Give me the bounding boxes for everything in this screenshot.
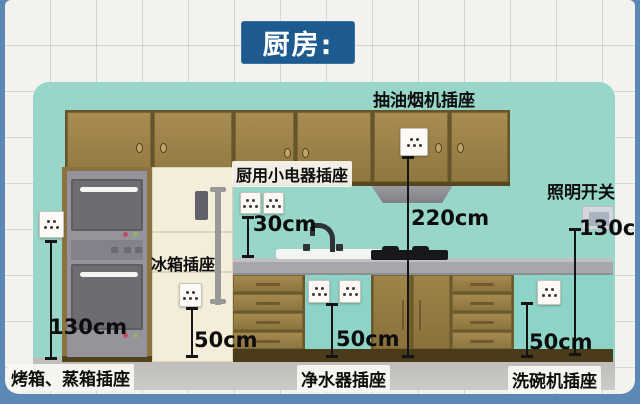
power-outlet-icon xyxy=(339,280,361,303)
measurement-dishwasher: 50cm xyxy=(529,330,593,354)
label-water-purifier-outlet: 净水器插座 xyxy=(297,365,390,392)
cabinet-knob-icon xyxy=(284,148,291,158)
cabinet-knob-icon xyxy=(302,148,309,158)
fridge-handle-icon xyxy=(210,299,226,304)
oven-door xyxy=(71,179,143,231)
drawer xyxy=(233,294,303,311)
faucet-handle-icon xyxy=(303,244,310,251)
power-outlet-icon xyxy=(240,192,261,214)
oven-button-icon xyxy=(135,247,142,253)
drawer xyxy=(452,313,512,330)
indicator-light-icon xyxy=(133,333,138,338)
drawer xyxy=(452,332,512,349)
cabinet-knob-icon xyxy=(457,143,464,153)
page-title-text: 厨房: xyxy=(263,23,334,62)
range-hood xyxy=(369,186,455,203)
fridge-handle-icon xyxy=(215,187,221,305)
oven-button-icon xyxy=(124,247,131,253)
diagram-background: 130cm 50cm 30cm 220cm 50cm 50cm 130cm 抽油… xyxy=(5,0,635,394)
measurement-fridge: 50cm xyxy=(194,328,258,352)
drawer-bank xyxy=(452,275,512,349)
indicator-light-icon xyxy=(133,232,138,237)
kitchen-diagram: 130cm 50cm 30cm 220cm 50cm 50cm 130cm 抽油… xyxy=(0,0,640,404)
fridge-handle-icon xyxy=(195,191,208,220)
countertop xyxy=(233,258,613,275)
oven-button-icon xyxy=(111,247,118,253)
power-outlet-icon xyxy=(263,192,284,214)
drawer xyxy=(452,275,512,292)
measure-line-water-purifier xyxy=(331,303,333,358)
label-dishwasher-outlet: 洗碗机插座 xyxy=(508,366,601,393)
measure-line-oven xyxy=(50,240,52,360)
faucet-handle-icon xyxy=(336,244,343,251)
label-oven-steamer-outlet: 烤箱、蒸箱插座 xyxy=(7,364,134,391)
measurement-oven: 130cm xyxy=(49,315,127,339)
page-title: 厨房: xyxy=(241,21,355,64)
drawer xyxy=(452,294,512,311)
measurement-range-hood: 220cm xyxy=(411,206,489,230)
cabinet-knob-icon xyxy=(435,143,442,153)
oven-control-panel xyxy=(71,240,143,260)
measure-line-small-appliance xyxy=(247,216,249,258)
measure-line-fridge xyxy=(191,307,193,358)
label-range-hood-outlet: 抽油烟机插座 xyxy=(373,86,475,111)
power-outlet-icon xyxy=(308,280,330,303)
measurement-small-appliance: 30cm xyxy=(253,212,317,236)
stove-burner-icon xyxy=(412,246,429,252)
cabinet-knob-icon xyxy=(160,143,167,153)
drawer xyxy=(233,275,303,292)
stove-burner-icon xyxy=(382,246,399,252)
cabinet-door xyxy=(413,275,450,349)
label-lighting-switch: 照明开关 xyxy=(547,178,615,203)
measure-line-range-hood xyxy=(407,156,409,358)
power-outlet-icon xyxy=(537,280,561,305)
power-outlet-icon xyxy=(179,283,202,307)
power-outlet-icon xyxy=(400,128,428,156)
fridge-handle-icon xyxy=(210,187,226,192)
measure-line-dishwasher xyxy=(526,302,528,358)
measurement-water-purifier: 50cm xyxy=(336,327,400,351)
label-fridge-outlet: 冰箱插座 xyxy=(151,251,215,275)
cabinet-knob-icon xyxy=(136,143,143,153)
power-outlet-icon xyxy=(39,211,64,238)
measurement-lighting: 130cm xyxy=(579,216,635,240)
indicator-light-icon xyxy=(123,232,128,237)
label-small-appliance-outlet: 厨用小电器插座 xyxy=(232,161,352,187)
